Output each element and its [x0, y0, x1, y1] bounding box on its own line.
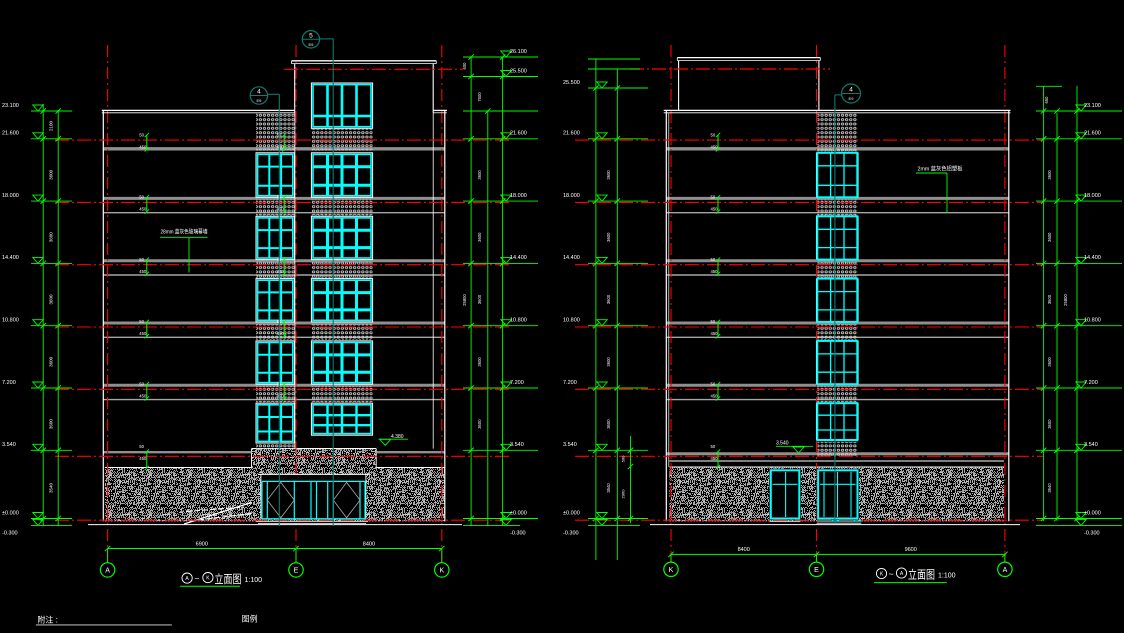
svg-text:E: E — [814, 567, 819, 574]
svg-text:-0.300: -0.300 — [563, 531, 579, 537]
svg-text:3600: 3600 — [1047, 419, 1052, 429]
svg-text:2960: 2960 — [621, 489, 626, 499]
svg-text:25.500: 25.500 — [563, 80, 580, 86]
svg-text:3600: 3600 — [477, 170, 482, 180]
svg-text:450: 450 — [277, 331, 285, 336]
svg-text:600: 600 — [462, 62, 467, 70]
svg-text:580: 580 — [621, 455, 626, 462]
svg-text:7.200: 7.200 — [2, 380, 16, 386]
svg-text:50: 50 — [711, 382, 716, 387]
svg-text:K: K — [439, 568, 444, 575]
svg-text:3.540: 3.540 — [2, 442, 16, 448]
svg-text:50: 50 — [139, 382, 144, 387]
svg-text:4.380: 4.380 — [391, 434, 404, 440]
svg-text:4: 4 — [849, 87, 853, 94]
svg-text:450: 450 — [711, 144, 719, 149]
svg-text:E9: E9 — [308, 42, 314, 47]
svg-text:21.600: 21.600 — [1084, 131, 1101, 137]
svg-text:2mm 蓝灰色铝塑板: 2mm 蓝灰色铝塑板 — [918, 165, 963, 173]
svg-text:3600: 3600 — [49, 356, 54, 367]
svg-text:50: 50 — [139, 132, 144, 137]
svg-text:3600: 3600 — [49, 419, 54, 430]
svg-text:50: 50 — [139, 444, 144, 449]
svg-text:18.000: 18.000 — [563, 193, 580, 199]
svg-text:3600: 3600 — [477, 419, 482, 429]
svg-text:450: 450 — [139, 207, 147, 212]
svg-text:4: 4 — [257, 89, 261, 96]
svg-text:8400: 8400 — [738, 547, 750, 553]
svg-text:A: A — [1003, 567, 1008, 574]
svg-text:25800: 25800 — [462, 294, 467, 306]
svg-text:3600: 3600 — [477, 357, 482, 367]
svg-text:3600: 3600 — [477, 232, 482, 242]
svg-text:E9: E9 — [849, 96, 855, 101]
svg-text:450: 450 — [277, 394, 285, 399]
svg-text:650: 650 — [1044, 96, 1049, 104]
svg-text:3600: 3600 — [1047, 170, 1052, 180]
svg-text:50: 50 — [711, 257, 716, 262]
svg-text:25.500: 25.500 — [510, 68, 527, 74]
svg-text:立面图: 立面图 — [908, 568, 935, 582]
svg-text:25800: 25800 — [1063, 294, 1068, 306]
svg-text:28mm 蓝灰色玻璃幕墙: 28mm 蓝灰色玻璃幕墙 — [161, 228, 208, 236]
svg-text:21.600: 21.600 — [2, 131, 19, 137]
svg-text:3600: 3600 — [1047, 232, 1052, 242]
svg-text:附注 :: 附注 : — [37, 615, 57, 625]
svg-text:50: 50 — [139, 319, 144, 324]
svg-text:-0.300: -0.300 — [1084, 531, 1100, 537]
svg-text:450: 450 — [139, 331, 147, 336]
svg-text:10.800: 10.800 — [510, 318, 527, 324]
svg-text:7.200: 7.200 — [510, 380, 524, 386]
svg-text:450: 450 — [139, 394, 147, 399]
svg-text:2100: 2100 — [49, 120, 54, 131]
svg-text:-0.300: -0.300 — [510, 531, 526, 537]
svg-text:3540: 3540 — [606, 483, 611, 493]
svg-text:10.800: 10.800 — [2, 318, 19, 324]
svg-text:50: 50 — [711, 195, 716, 200]
svg-text:23.100: 23.100 — [2, 103, 19, 109]
svg-text:9600: 9600 — [905, 547, 917, 553]
svg-text:3600: 3600 — [606, 357, 611, 367]
svg-text:50: 50 — [711, 132, 716, 137]
svg-text:23.100: 23.100 — [1084, 103, 1101, 109]
svg-text:21.600: 21.600 — [563, 131, 580, 137]
svg-text:18.000: 18.000 — [1084, 193, 1101, 199]
svg-text:3600: 3600 — [606, 232, 611, 242]
svg-text:3600: 3600 — [606, 170, 611, 180]
svg-text:3600: 3600 — [606, 419, 611, 429]
svg-text:450: 450 — [277, 269, 285, 274]
svg-text:~: ~ — [195, 574, 200, 584]
svg-text:450: 450 — [277, 207, 285, 212]
svg-text:14.400: 14.400 — [563, 255, 580, 261]
svg-text:1:100: 1:100 — [245, 577, 263, 584]
svg-text:450: 450 — [139, 269, 147, 274]
svg-text:14.400: 14.400 — [510, 255, 527, 261]
svg-text:50: 50 — [711, 444, 716, 449]
svg-text:50: 50 — [139, 195, 144, 200]
svg-text:450: 450 — [711, 207, 719, 212]
svg-text:450: 450 — [277, 144, 285, 149]
svg-text:18.000: 18.000 — [2, 193, 19, 199]
svg-text:450: 450 — [711, 331, 719, 336]
svg-text:±0.000: ±0.000 — [2, 510, 19, 516]
svg-text:50: 50 — [711, 319, 716, 324]
svg-text:~: ~ — [889, 569, 894, 579]
svg-text:7500: 7500 — [477, 92, 482, 102]
svg-text:450: 450 — [711, 456, 719, 461]
svg-text:3600: 3600 — [606, 294, 611, 304]
svg-text:3600: 3600 — [1047, 357, 1052, 367]
svg-text:A: A — [105, 568, 110, 575]
svg-text:14.400: 14.400 — [2, 255, 19, 261]
svg-text:±0.000: ±0.000 — [1084, 510, 1101, 516]
svg-text:3.540: 3.540 — [1084, 442, 1098, 448]
svg-text:18.000: 18.000 — [510, 193, 527, 199]
svg-text:立面图: 立面图 — [215, 572, 242, 586]
svg-text:26.100: 26.100 — [510, 49, 527, 55]
svg-text:450: 450 — [139, 144, 147, 149]
svg-text:21.600: 21.600 — [510, 131, 527, 137]
svg-text:3540: 3540 — [1047, 483, 1052, 493]
svg-text:3.540: 3.540 — [563, 442, 577, 448]
svg-text:±0.000: ±0.000 — [563, 510, 580, 516]
svg-text:-0.300: -0.300 — [2, 531, 18, 537]
svg-text:K: K — [669, 567, 674, 574]
svg-text:50: 50 — [139, 257, 144, 262]
svg-text:10.800: 10.800 — [1084, 318, 1101, 324]
svg-text:1:100: 1:100 — [938, 573, 956, 580]
svg-text:6900: 6900 — [196, 542, 208, 548]
svg-text:图例: 图例 — [242, 614, 258, 624]
svg-text:450: 450 — [711, 394, 719, 399]
svg-text:3600: 3600 — [477, 294, 482, 304]
svg-text:±0.000: ±0.000 — [510, 510, 527, 516]
svg-text:3.540: 3.540 — [510, 442, 524, 448]
svg-text:14.400: 14.400 — [1084, 255, 1101, 261]
svg-text:10.800: 10.800 — [563, 318, 580, 324]
svg-text:3540: 3540 — [49, 482, 54, 493]
svg-text:3.540: 3.540 — [776, 441, 789, 447]
svg-text:3600: 3600 — [49, 294, 54, 305]
svg-text:3600: 3600 — [49, 169, 54, 180]
svg-text:3600: 3600 — [49, 232, 54, 243]
svg-text:450: 450 — [711, 269, 719, 274]
svg-text:7.200: 7.200 — [563, 380, 577, 386]
svg-text:5: 5 — [309, 33, 313, 40]
svg-text:8400: 8400 — [363, 542, 375, 548]
svg-text:450: 450 — [139, 456, 147, 461]
svg-text:7.200: 7.200 — [1084, 380, 1098, 386]
svg-text:E9: E9 — [256, 98, 262, 103]
svg-text:3600: 3600 — [1047, 294, 1052, 304]
svg-text:E: E — [294, 568, 299, 575]
